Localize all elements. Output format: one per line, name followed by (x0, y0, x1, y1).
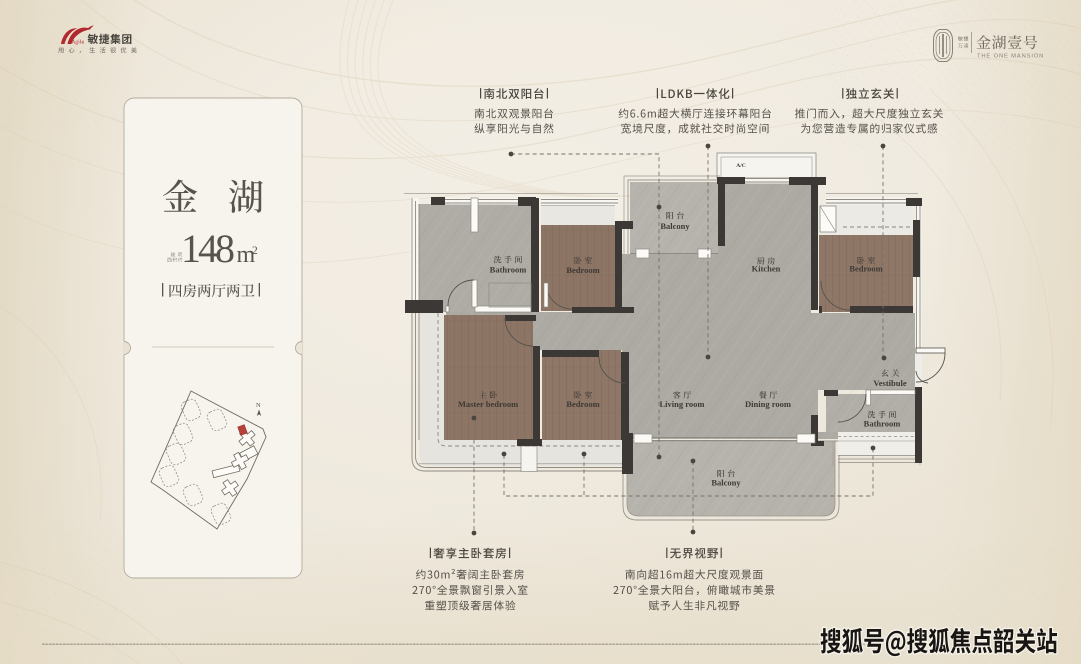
svg-text:Bedroom: Bedroom (566, 265, 599, 275)
svg-text:N: N (256, 402, 261, 409)
svg-text:Living room: Living room (660, 399, 705, 409)
svg-text:Bathroom: Bathroom (864, 419, 901, 429)
svg-text:Kitchen: Kitchen (752, 264, 781, 274)
svg-text:Bedroom: Bedroom (849, 264, 882, 274)
svg-text:Master bedroom: Master bedroom (458, 399, 518, 409)
svg-text:A/C: A/C (736, 163, 746, 169)
svg-text:148: 148 (181, 226, 235, 271)
svg-text:THE ONE MANSION: THE ONE MANSION (977, 54, 1044, 60)
svg-text:Balcony: Balcony (711, 478, 741, 488)
svg-text:2: 2 (252, 245, 258, 257)
svg-text:Vestibule: Vestibule (873, 378, 906, 388)
svg-text:Dining room: Dining room (745, 399, 791, 409)
svg-text:Bedroom: Bedroom (566, 399, 599, 409)
svg-text:Bathroom: Bathroom (490, 265, 527, 275)
svg-text:Balcony: Balcony (660, 221, 690, 231)
